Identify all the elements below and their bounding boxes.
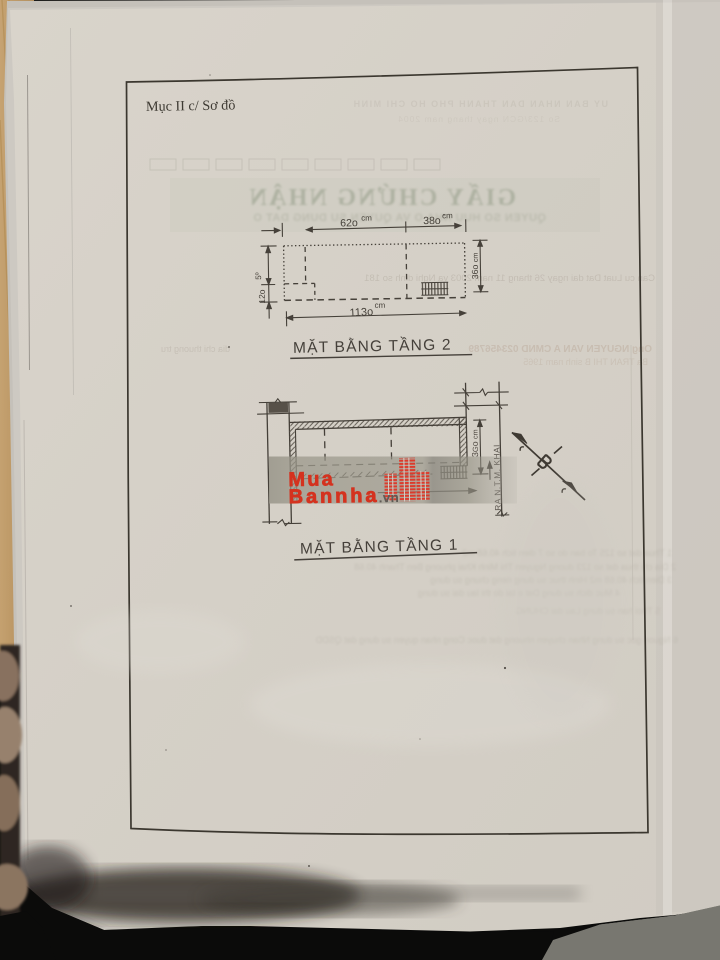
svg-text:62o: 62o bbox=[340, 217, 358, 229]
svg-text:38o: 38o bbox=[423, 215, 441, 227]
svg-text:QUYEN SO HUU NHA O VA QUYEN SU: QUYEN SO HUU NHA O VA QUYEN SU DUNG DAT … bbox=[253, 212, 546, 224]
svg-text:Mục II c/ Sơ đồ: Mục II c/ Sơ đồ bbox=[146, 97, 236, 115]
svg-text:GIẤY CHỨNG NHẬN: GIẤY CHỨNG NHẬN bbox=[247, 184, 516, 211]
svg-text:UY BAN NHAN DAN THANH PHO HO C: UY BAN NHAN DAN THANH PHO HO CHI MINH bbox=[352, 99, 608, 109]
svg-text:6 Nguon goc su dung Nhan chu: 6 Nguon goc su dung Nhan chuyen nhuong d… bbox=[315, 635, 678, 645]
svg-text:Can cu Luat Dat dai ngay 26 th: Can cu Luat Dat dai ngay 26 thang 11 nam… bbox=[364, 273, 655, 284]
svg-text:Bannha: Bannha bbox=[289, 485, 380, 509]
svg-text:Ong NGUYEN VAN A CMND 023456: Ong NGUYEN VAN A CMND 023456789 bbox=[468, 344, 652, 355]
svg-text:cm: cm bbox=[361, 213, 372, 222]
svg-text:5º: 5º bbox=[254, 272, 263, 280]
svg-text:3Go cm: 3Go cm bbox=[469, 429, 480, 457]
svg-text:So 123/GCN ngay thang nam 2004: So 123/GCN ngay thang nam 2004 bbox=[397, 114, 560, 124]
svg-text:dia chi thuong tru: dia chi thuong tru bbox=[161, 344, 230, 354]
svg-text:cm: cm bbox=[374, 301, 385, 310]
svg-text:113o: 113o bbox=[349, 306, 373, 319]
svg-text:12o: 12o bbox=[257, 289, 267, 304]
svg-text:Ba TRAN THI B sinh nam 1965: Ba TRAN THI B sinh nam 1965 bbox=[523, 357, 648, 367]
svg-text:MẶT BẰNG TẦNG 2: MẶT BẰNG TẦNG 2 bbox=[293, 336, 452, 357]
svg-text:36o cm: 36o cm bbox=[470, 253, 480, 280]
svg-text:.vn: .vn bbox=[379, 490, 400, 505]
